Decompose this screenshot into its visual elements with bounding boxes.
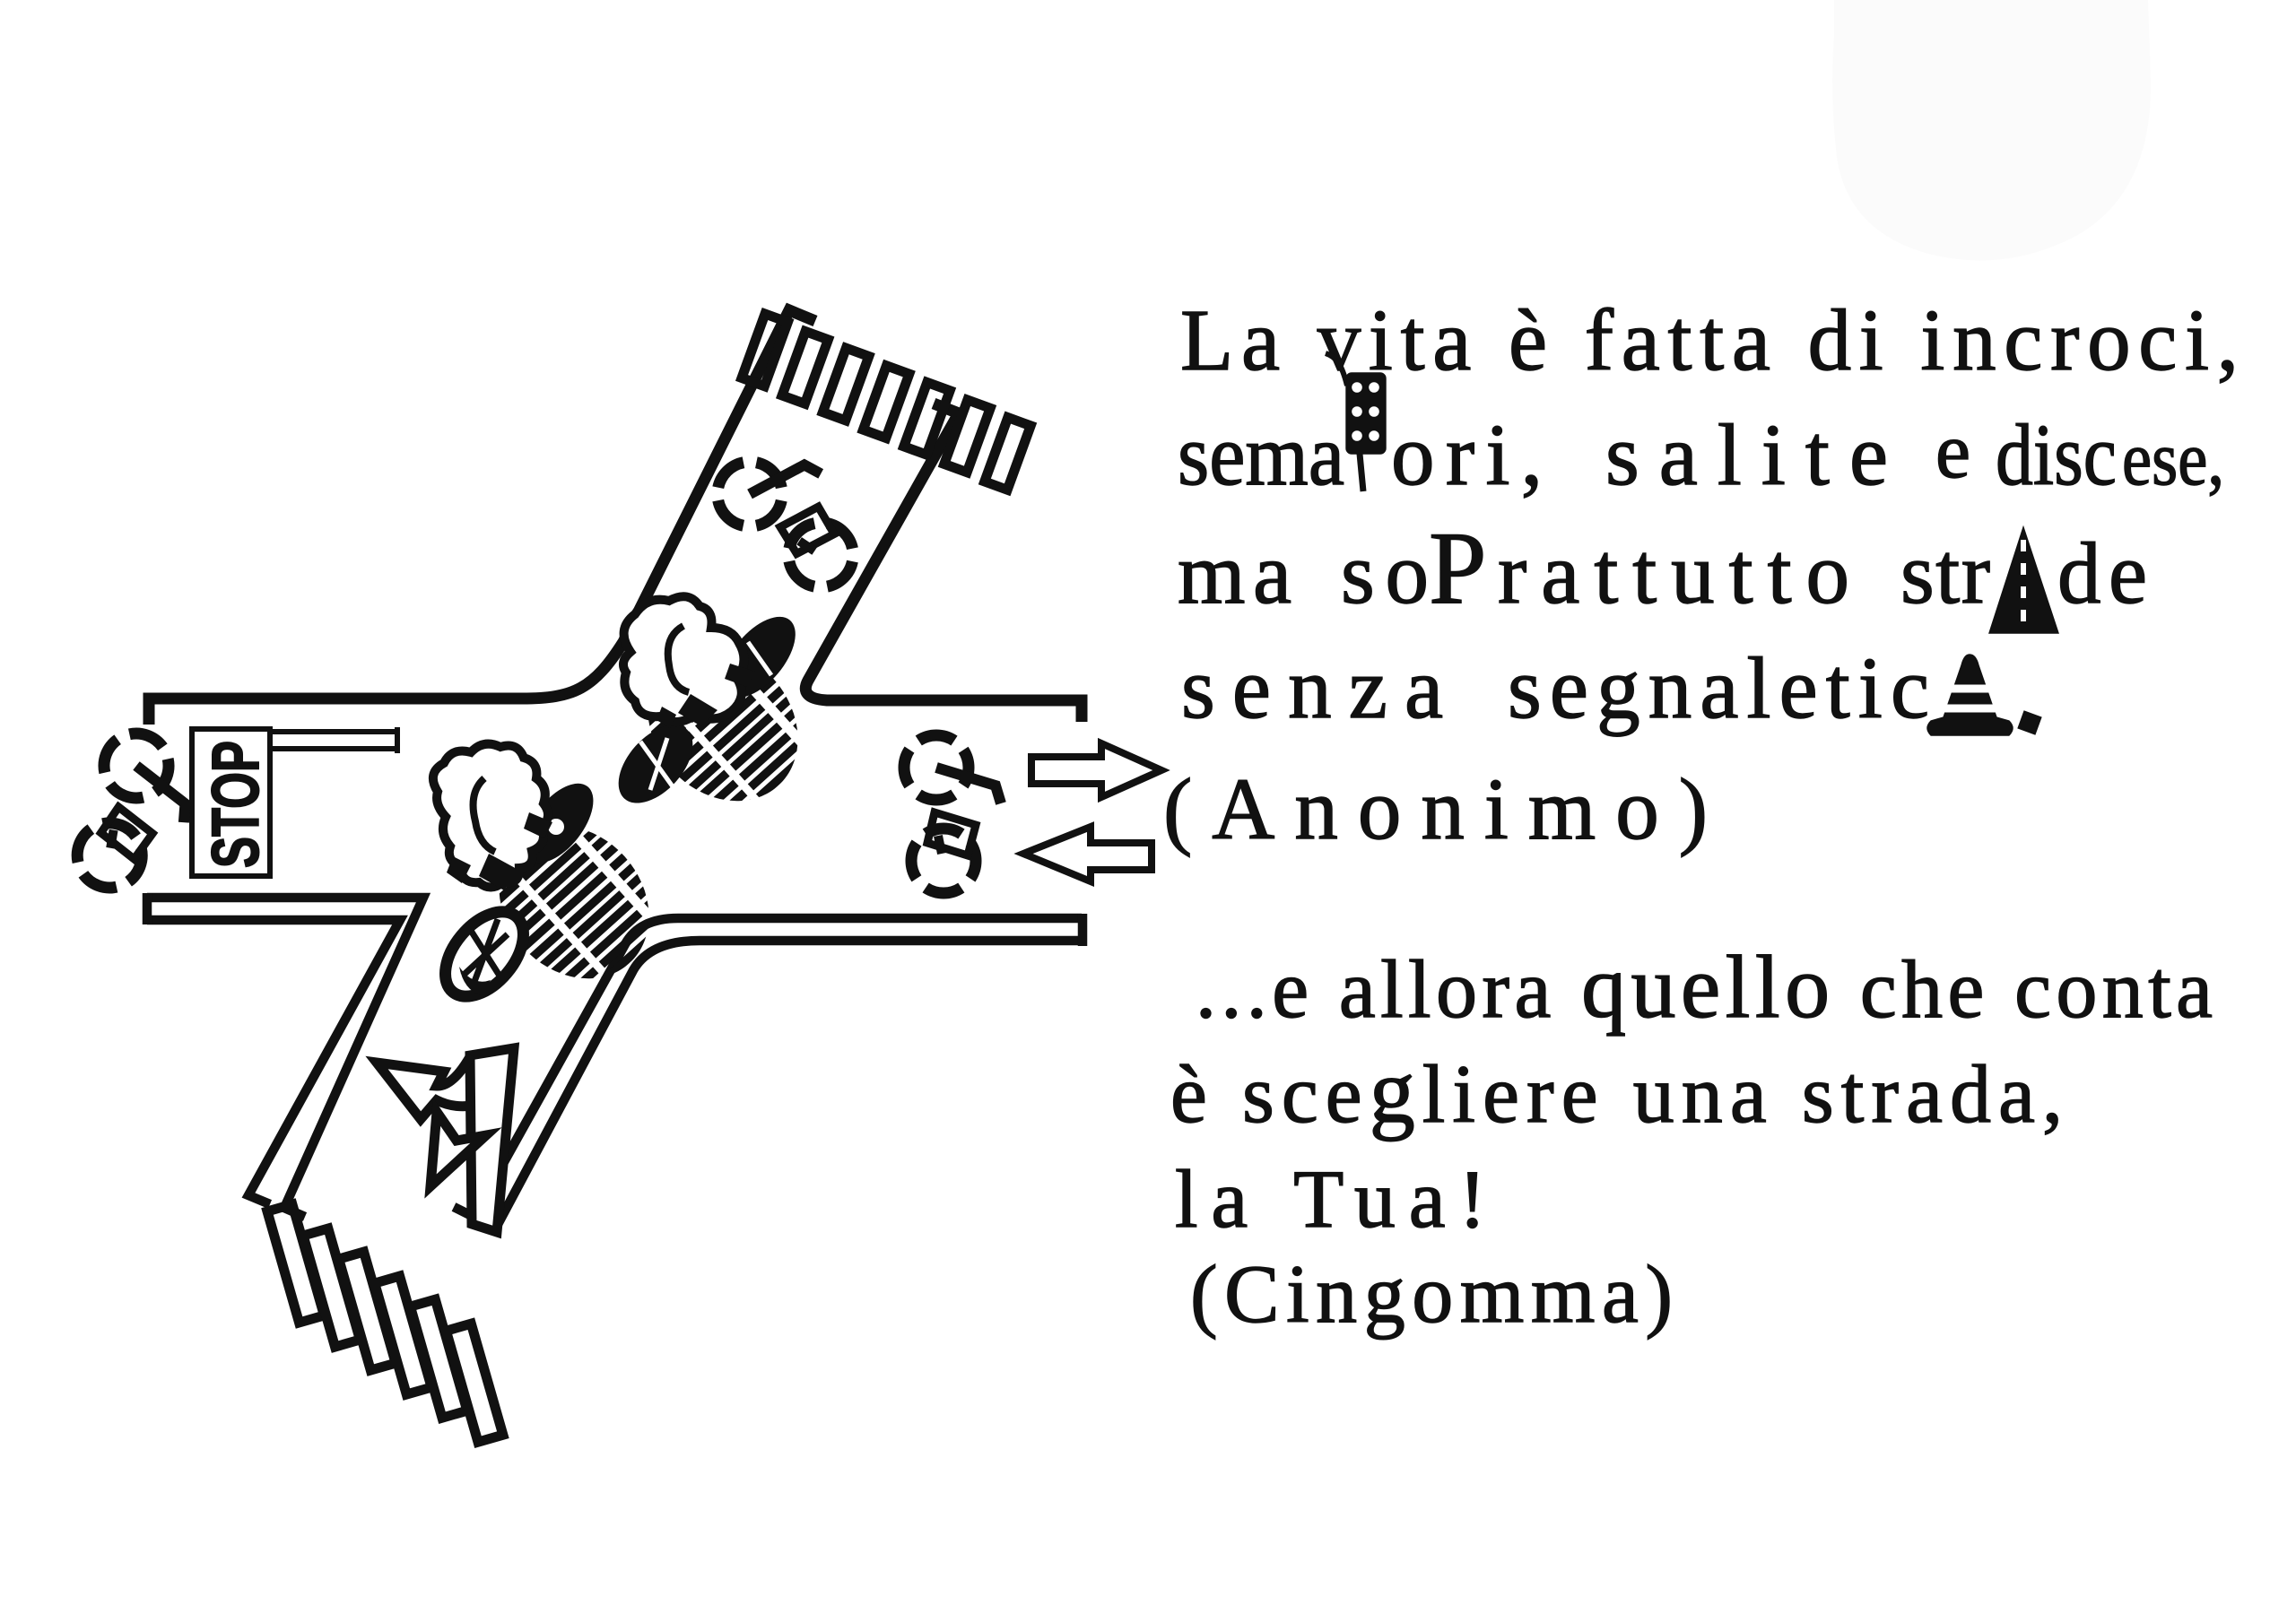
svg-text:...e allora quello che conta: ...e allora quello che conta (1196, 937, 2213, 1037)
svg-text:ori,: ori, (1391, 407, 1543, 503)
svg-text:so: so (1341, 525, 1429, 621)
svg-text:è scegliere una strada,: è scegliere una strada, (1170, 1041, 2063, 1142)
svg-text:la Tua!: la Tua! (1175, 1153, 1486, 1245)
svg-text:disc: disc (1996, 407, 2117, 503)
svg-text:segnaletic: segnaletic (1508, 640, 1929, 736)
svg-text:rattutto: rattutto (1498, 525, 1849, 621)
svg-text:e: e (1935, 408, 1970, 495)
svg-text:(Cingomma): (Cingomma) (1190, 1248, 1673, 1340)
svg-text:La vita è fatta di incroci,: La vita è fatta di incroci, (1180, 292, 2239, 388)
svg-text:sema: sema (1178, 407, 1344, 503)
svg-text:str: str (1900, 525, 1990, 621)
svg-text:de: de (2057, 525, 2147, 621)
svg-text:ma: ma (1178, 525, 1291, 621)
svg-text:P: P (1429, 511, 1487, 626)
svg-text:ese,: ese, (2122, 415, 2224, 501)
svg-text:senza: senza (1181, 640, 1443, 736)
svg-text:STOP: STOP (198, 741, 273, 868)
svg-text:salite: salite (1605, 407, 1888, 503)
svg-text:(Anonimo): (Anonimo) (1163, 761, 1708, 857)
